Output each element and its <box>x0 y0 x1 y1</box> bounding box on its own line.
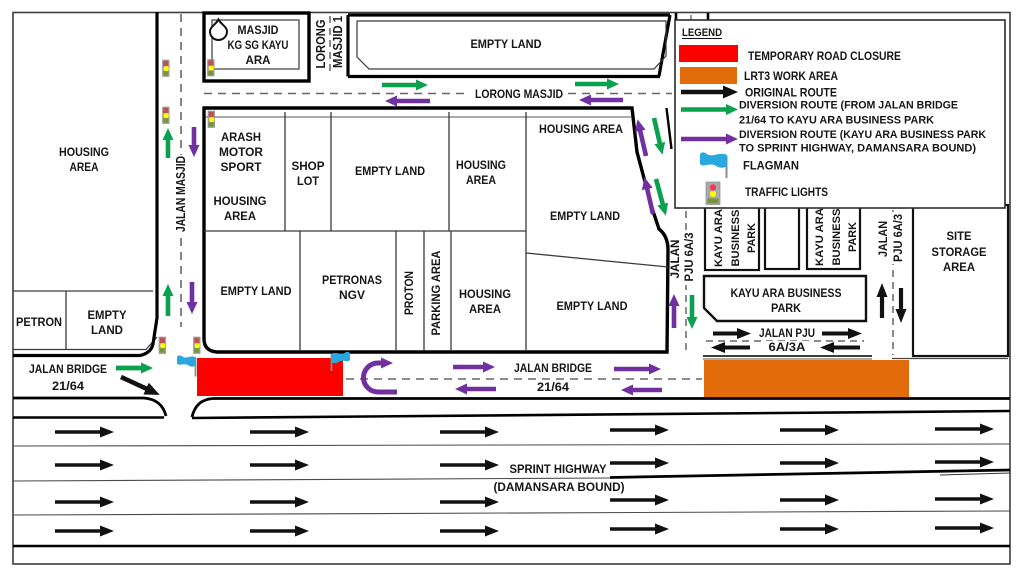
svg-text:LAND: LAND <box>91 325 123 337</box>
svg-text:PARK: PARK <box>746 223 758 253</box>
svg-text:JALAN PJU: JALAN PJU <box>759 328 815 340</box>
svg-text:AREA: AREA <box>943 260 975 274</box>
svg-text:21/64 TO KAYU ARA BUSINESS PAR: 21/64 TO KAYU ARA BUSINESS PARK <box>739 115 934 127</box>
svg-text:6A/3A: 6A/3A <box>769 342 806 354</box>
svg-text:KAYU ARA: KAYU ARA <box>713 209 725 267</box>
svg-text:LEGEND: LEGEND <box>682 27 722 39</box>
svg-text:EMPTY LAND: EMPTY LAND <box>557 299 628 313</box>
svg-text:LORONG: LORONG <box>314 20 328 69</box>
svg-text:AREA: AREA <box>70 160 99 174</box>
svg-text:ARASH: ARASH <box>221 130 261 144</box>
svg-text:AREA: AREA <box>224 209 256 223</box>
svg-text:PARK: PARK <box>771 301 801 315</box>
svg-text:SHOP: SHOP <box>292 159 325 173</box>
svg-text:PJU 6A/3: PJU 6A/3 <box>684 233 696 282</box>
svg-text:PETRON: PETRON <box>16 317 62 329</box>
svg-text:TO SPRINT HIGHWAY, DAMANSARA B: TO SPRINT HIGHWAY, DAMANSARA BOUND) <box>739 143 976 155</box>
svg-text:MASJID 1: MASJID 1 <box>331 16 345 68</box>
svg-text:ARA: ARA <box>246 55 271 67</box>
svg-text:SPRINT HIGHWAY: SPRINT HIGHWAY <box>510 464 607 476</box>
svg-text:DIVERSION ROUTE (KAYU ARA BUSI: DIVERSION ROUTE (KAYU ARA BUSINESS PARK <box>739 129 986 141</box>
svg-text:KAYU ARA: KAYU ARA <box>814 208 826 266</box>
svg-text:JALAN BRIDGE: JALAN BRIDGE <box>29 362 107 376</box>
svg-text:PJU 6A/3: PJU 6A/3 <box>893 214 905 262</box>
svg-text:21/64: 21/64 <box>52 379 84 393</box>
svg-text:HOUSING: HOUSING <box>456 158 506 172</box>
svg-text:PARKING AREA: PARKING AREA <box>431 251 443 336</box>
svg-text:MASJID: MASJID <box>238 25 279 37</box>
svg-text:TRAFFIC LIGHTS: TRAFFIC LIGHTS <box>745 187 828 199</box>
svg-text:AREA: AREA <box>466 173 496 187</box>
svg-text:EMPTY: EMPTY <box>88 310 127 322</box>
svg-text:PETRONAS: PETRONAS <box>322 273 382 287</box>
svg-text:HOUSING AREA: HOUSING AREA <box>539 122 623 136</box>
svg-text:KG SG KAYU: KG SG KAYU <box>228 40 289 52</box>
svg-text:EMPTY LAND: EMPTY LAND <box>221 284 292 298</box>
svg-text:EMPTY LAND: EMPTY LAND <box>550 209 620 223</box>
svg-text:DIVERSION ROUTE (FROM JALAN BR: DIVERSION ROUTE (FROM JALAN BRIDGE <box>739 100 958 112</box>
svg-text:JALAN: JALAN <box>670 240 682 279</box>
svg-text:21/64: 21/64 <box>537 380 569 394</box>
svg-text:LOT: LOT <box>297 174 320 188</box>
svg-text:HOUSING: HOUSING <box>214 194 267 208</box>
svg-text:ORIGINAL ROUTE: ORIGINAL ROUTE <box>745 88 837 100</box>
svg-text:AREA: AREA <box>469 302 501 316</box>
svg-text:NGV: NGV <box>339 288 365 302</box>
svg-text:BUSINESS: BUSINESS <box>831 209 843 266</box>
svg-text:EMPTY LAND: EMPTY LAND <box>355 164 425 178</box>
svg-text:SITE: SITE <box>947 229 972 243</box>
svg-text:JALAN MASJID: JALAN MASJID <box>173 156 188 232</box>
svg-text:MOTOR: MOTOR <box>219 145 263 159</box>
svg-text:(DAMANSARA BOUND): (DAMANSARA BOUND) <box>494 482 625 494</box>
svg-text:JALAN BRIDGE: JALAN BRIDGE <box>514 361 592 375</box>
svg-text:PROTON: PROTON <box>404 271 416 315</box>
svg-text:HOUSING: HOUSING <box>59 145 109 159</box>
svg-text:TEMPORARY ROAD CLOSURE: TEMPORARY ROAD CLOSURE <box>748 51 901 63</box>
svg-text:KAYU ARA BUSINESS: KAYU ARA BUSINESS <box>731 286 842 300</box>
svg-text:LORONG MASJID: LORONG MASJID <box>475 89 563 101</box>
svg-text:FLAGMAN: FLAGMAN <box>743 161 799 173</box>
svg-text:SPORT: SPORT <box>221 160 263 174</box>
svg-text:BUSINESS: BUSINESS <box>730 210 742 267</box>
svg-text:STORAGE: STORAGE <box>932 245 987 259</box>
svg-text:HOUSING: HOUSING <box>459 287 511 301</box>
svg-text:JALAN: JALAN <box>878 221 890 257</box>
svg-text:PARK: PARK <box>847 222 859 252</box>
svg-text:EMPTY LAND: EMPTY LAND <box>471 37 542 51</box>
svg-text:LRT3 WORK AREA: LRT3 WORK AREA <box>744 71 838 83</box>
